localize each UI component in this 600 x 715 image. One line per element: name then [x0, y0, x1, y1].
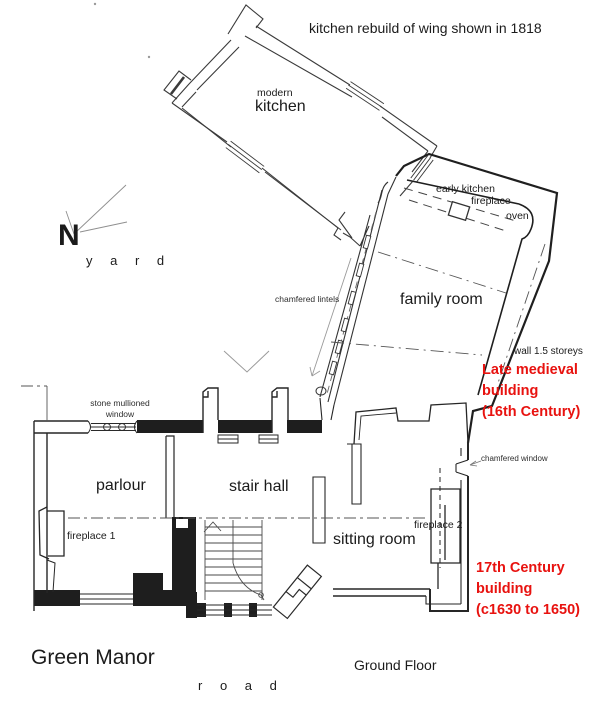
road-label: r o a d — [198, 679, 284, 694]
dashdot-lines — [21, 386, 428, 518]
staircase — [204, 520, 264, 600]
feature-label-fireplace-1: fireplace 1 — [67, 530, 115, 542]
feature-label-oven: oven — [506, 210, 529, 222]
feature-label-fireplace-2: fireplace 2 — [414, 519, 462, 531]
room-label-sitting-room: sitting room — [333, 531, 416, 549]
porch-bay — [273, 565, 321, 618]
north-letter: N — [58, 219, 80, 254]
feature-label-early-kitchen: early kitchen — [436, 183, 495, 195]
room-label-kitchen: kitchen — [255, 98, 306, 116]
feature-label-stone-mullioned-window: stone mullioned window — [88, 398, 152, 419]
room-label-family-room: family room — [400, 291, 483, 309]
note-kitchen-rebuild: kitchen rebuild of wing shown in 1818 — [309, 20, 542, 36]
feature-label-chamfered-lintels: chamfered lintels — [275, 295, 339, 305]
feature-label-early-fireplace: fireplace — [471, 195, 511, 207]
room-label-parlour: parlour — [96, 477, 146, 495]
feature-label-chamfered-window: chamfered window — [481, 454, 548, 463]
floor-label: Ground Floor — [354, 657, 436, 673]
period-note-late-medieval: Late medieval building (16th Century) — [482, 360, 580, 423]
feature-label-wall-storeys: wall 1.5 storeys — [514, 346, 583, 358]
scan-specks — [94, 3, 150, 58]
stone-mullioned-window-glyph — [91, 424, 136, 431]
yard-label: y a r d — [86, 254, 171, 269]
room-label-stair-hall: stair hall — [229, 478, 289, 496]
floor-plan-page: kitchen rebuild of wing shown in 1818 mo… — [0, 0, 600, 715]
chamfered-window-arrow-icon — [470, 461, 481, 466]
kitchen-window-north-icon — [346, 82, 384, 111]
period-note-17th-century: 17th Century building (c1630 to 1650) — [476, 558, 580, 621]
chevron-mark-icon — [224, 351, 269, 372]
page-title: Green Manor — [31, 646, 155, 670]
wall-notch — [176, 519, 188, 528]
kitchen-window-south-icon — [226, 141, 264, 173]
kitchen-wing-walls — [164, 5, 437, 246]
